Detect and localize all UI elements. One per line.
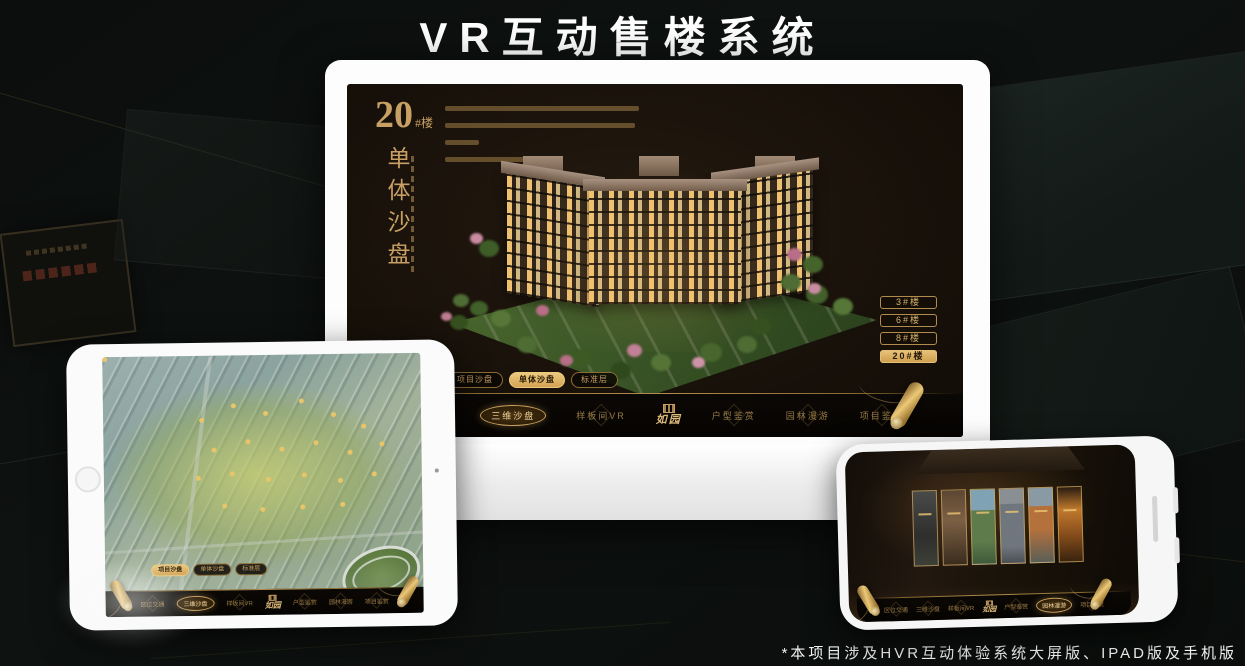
phone-screen: 区位交通 三维沙盘 样板间VR 如园 户型鉴赏 园林漫游 项目鉴赏 — [845, 444, 1140, 622]
building-selector: 3#楼 6#楼 8#楼 20#楼 — [880, 296, 937, 363]
block-heading: 20#楼 — [375, 96, 433, 134]
ruyuan-logo: 如园 — [982, 600, 996, 613]
roof-dormer — [755, 156, 795, 176]
phone-device: 区位交通 三维沙盘 样板间VR 如园 户型鉴赏 园林漫游 项目鉴赏 — [835, 435, 1178, 630]
seal-icon — [663, 404, 675, 413]
menu-item-3d-sandbox[interactable]: 三维沙盘 — [480, 405, 546, 426]
roof-dormer — [639, 156, 679, 176]
building-3d-scene[interactable] — [447, 136, 887, 408]
interior-ceiling — [915, 446, 1086, 475]
gallery-card[interactable] — [1028, 487, 1055, 564]
menu-item-project-gallery[interactable]: 项目鉴赏 — [365, 596, 389, 605]
ruyuan-logo: 如园 — [265, 594, 281, 609]
seal-icon — [986, 600, 993, 605]
tab-single-building-sandbox[interactable]: 单体沙盘 — [193, 563, 231, 576]
menu-item-floorplan[interactable]: 户型鉴赏 — [1004, 601, 1028, 611]
residential-building-model — [507, 152, 813, 328]
menu-item-location-traffic[interactable]: 区位交通 — [884, 604, 908, 614]
poster-canvas: VR互动售楼系统 20#楼 单体沙盘 — [0, 0, 1245, 666]
menu-item-garden-roam[interactable]: 园林漫游 — [329, 596, 353, 605]
building-button-20[interactable]: 20#楼 — [880, 350, 937, 363]
menu-item-garden-roam[interactable]: 园林漫游 — [1036, 597, 1072, 613]
gallery-card[interactable] — [912, 490, 939, 567]
building-left-wing — [507, 173, 599, 308]
menu-item-3d-sandbox[interactable]: 三维沙盘 — [916, 603, 940, 613]
tab-single-building-sandbox[interactable]: 单体沙盘 — [509, 372, 565, 388]
notch-speaker — [1152, 496, 1158, 542]
tab-project-sandbox[interactable]: 项目沙盘 — [447, 372, 503, 388]
camera-icon — [435, 469, 439, 473]
tab-standard-floor[interactable]: 标准层 — [571, 372, 618, 388]
fog-decoration — [56, 556, 206, 646]
scene-gallery — [912, 486, 1084, 567]
text-line — [445, 106, 639, 111]
sandbox-sub-tabs: 项目沙盘 单体沙盘 标准层 — [447, 372, 618, 388]
green-trees — [453, 294, 469, 307]
building-button-3[interactable]: 3#楼 — [880, 296, 937, 309]
ruyuan-logo: 如园 — [656, 404, 682, 426]
footnote: *本项目涉及HVR互动体验系统大屏版、IPAD版及手机版 — [782, 642, 1237, 663]
seal-icon — [269, 594, 277, 600]
section-vertical-title: 单体沙盘 — [379, 146, 413, 316]
power-button[interactable] — [1174, 537, 1180, 563]
building-center — [589, 190, 741, 304]
menu-item-garden-roam[interactable]: 园林漫游 — [786, 409, 830, 422]
gallery-card[interactable] — [941, 489, 968, 566]
gallery-card[interactable] — [1057, 486, 1084, 563]
page-title: VR互动售楼系统 — [0, 4, 1245, 65]
volume-button[interactable] — [1173, 487, 1179, 513]
menu-item-showroom-vr[interactable]: 样板间VR — [576, 409, 626, 422]
home-button[interactable] — [75, 466, 101, 492]
gallery-card[interactable] — [970, 488, 997, 565]
tab-standard-floor[interactable]: 标准层 — [235, 563, 267, 575]
roof-dormer — [523, 156, 563, 176]
building-right-wing — [717, 169, 813, 304]
menu-item-showroom-vr[interactable]: 样板间VR — [948, 602, 975, 612]
building-button-6[interactable]: 6#楼 — [880, 314, 937, 327]
menu-item-floorplan[interactable]: 户型鉴赏 — [293, 597, 317, 606]
vertical-caption-decoration — [411, 154, 414, 272]
gallery-card[interactable] — [999, 488, 1026, 565]
pink-trees — [441, 312, 452, 321]
building-button-8[interactable]: 8#楼 — [880, 332, 937, 345]
block-number: 20 — [375, 94, 413, 136]
block-unit: #楼 — [415, 116, 433, 130]
menu-item-floorplan[interactable]: 户型鉴赏 — [712, 409, 756, 422]
menu-item-showroom-vr[interactable]: 样板间VR — [226, 598, 252, 607]
